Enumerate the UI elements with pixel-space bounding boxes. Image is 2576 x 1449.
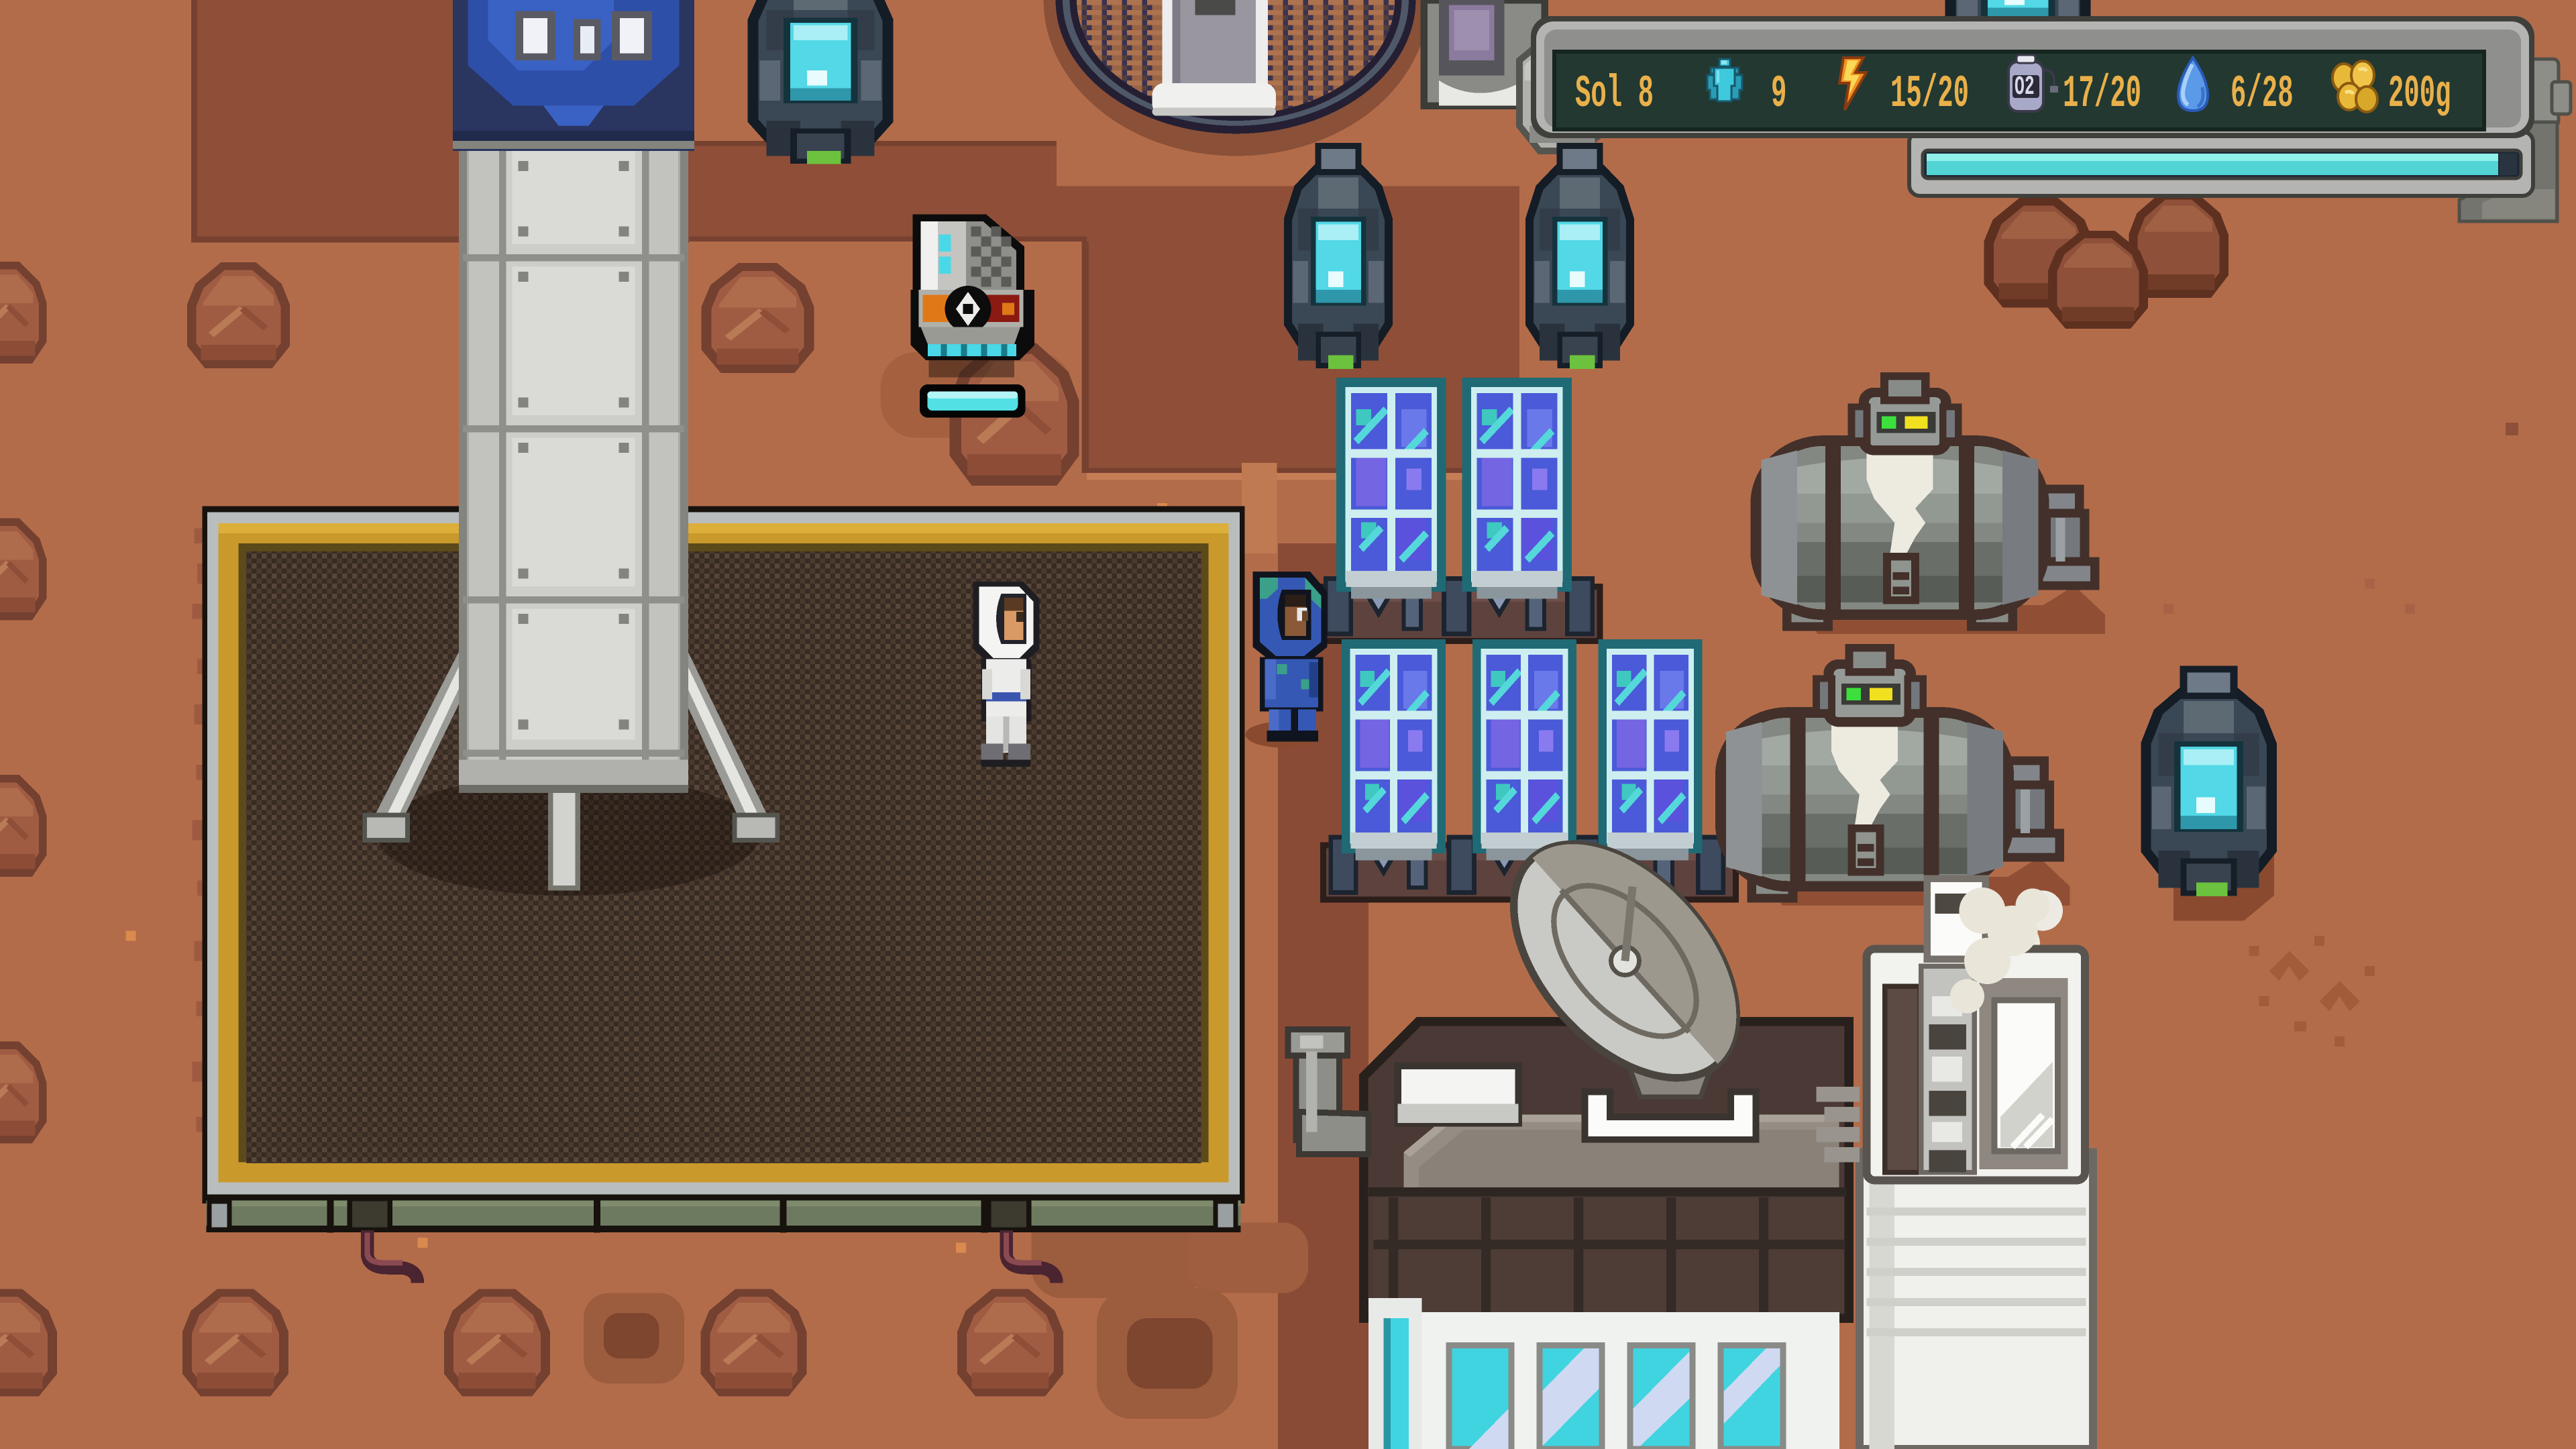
svg-text:6/28: 6/28 bbox=[2231, 68, 2294, 120]
svg-text:9: 9 bbox=[1771, 68, 1786, 120]
svg-text:17/20: 17/20 bbox=[2063, 68, 2141, 120]
svg-text:O2: O2 bbox=[2015, 71, 2035, 102]
svg-text:200g: 200g bbox=[2388, 68, 2451, 120]
svg-text:15/20: 15/20 bbox=[1890, 68, 1969, 120]
svg-text:Sol 8: Sol 8 bbox=[1575, 68, 1654, 120]
